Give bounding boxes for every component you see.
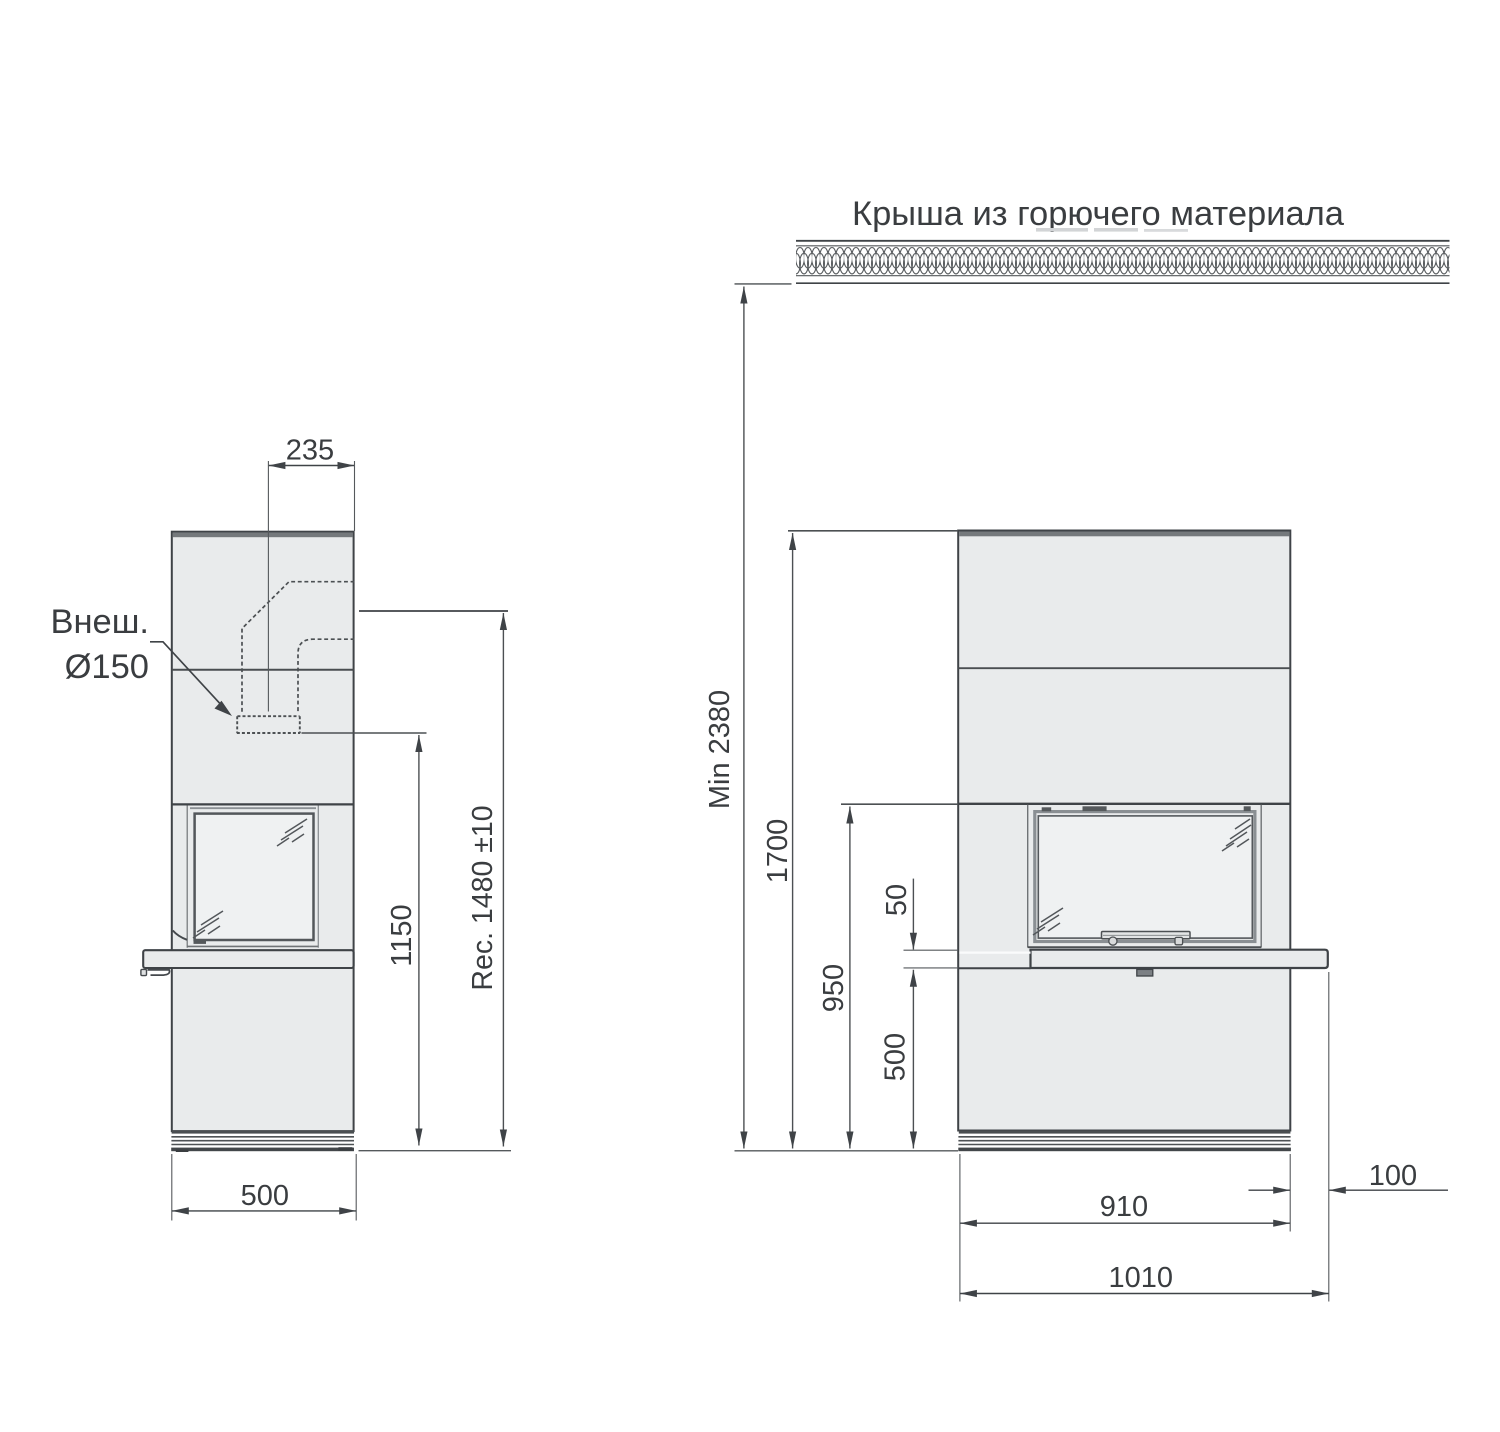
svg-text:910: 910 [1100,1191,1148,1223]
svg-text:100: 100 [1369,1160,1417,1192]
svg-text:500: 500 [880,1033,912,1081]
svg-text:Rec. 1480 ±10: Rec. 1480 ±10 [467,805,499,990]
svg-text:1700: 1700 [762,819,794,884]
svg-text:Внеш.: Внеш. [50,603,149,641]
svg-text:1150: 1150 [386,904,418,966]
svg-text:50: 50 [881,884,913,916]
svg-text:Ø150: Ø150 [65,648,149,686]
svg-text:Крыша из горючего материала: Крыша из горючего материала [852,195,1345,233]
svg-text:950: 950 [818,964,850,1012]
svg-text:1010: 1010 [1109,1262,1174,1294]
svg-text:Min 2380: Min 2380 [704,690,736,809]
svg-text:500: 500 [241,1180,289,1212]
svg-text:235: 235 [286,435,334,467]
